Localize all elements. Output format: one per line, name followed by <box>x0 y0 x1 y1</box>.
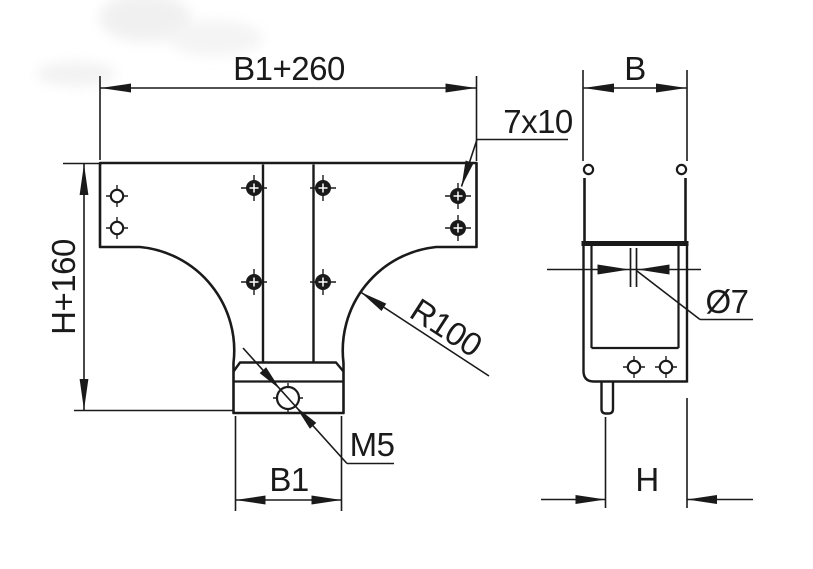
dim-label-fillet-radius: R100 <box>404 291 489 364</box>
dim-label-thread: M5 <box>350 426 395 463</box>
dim-label-hole-diameter: Ø7 <box>705 283 748 320</box>
front-outline <box>100 163 477 413</box>
arrowhead <box>656 84 687 93</box>
drawing-canvas: B1+260 7x10 H+160 R100 <box>0 0 813 569</box>
arrowhead <box>361 292 387 311</box>
dimensions: B1+260 7x10 H+160 R100 <box>45 50 753 511</box>
mounting-tab <box>602 382 614 414</box>
hole-filled <box>445 183 471 209</box>
technical-drawing: B1+260 7x10 H+160 R100 <box>0 0 813 569</box>
hole-filled <box>445 215 471 241</box>
hole-open <box>106 217 128 239</box>
side-view <box>582 165 689 414</box>
dim-overall-height: H+160 <box>45 164 233 411</box>
arrowhead <box>687 495 717 504</box>
arrowhead <box>236 496 266 505</box>
dim-slot: 7x10 <box>462 103 573 187</box>
dim-label-tray-height: H <box>635 461 658 498</box>
arrowhead <box>598 265 630 275</box>
arrowhead <box>638 265 670 275</box>
arrowhead <box>80 164 89 195</box>
dim-label-stem-width: B1 <box>269 461 308 498</box>
watermark <box>36 0 263 86</box>
arrowhead <box>296 407 317 429</box>
front-view <box>100 163 477 413</box>
hole-open <box>623 356 645 378</box>
dim-tray-height: H <box>541 398 753 508</box>
arrowhead <box>80 379 89 410</box>
dim-hole-diameter: Ø7 <box>547 265 753 321</box>
block-chamfer <box>234 363 344 372</box>
hook-right <box>677 165 686 174</box>
dim-label-tray-width: B <box>624 50 646 87</box>
dim-overall-width: B1+260 <box>100 50 477 161</box>
dim-tray-width: B <box>583 50 687 161</box>
dim-label-overall-height: H+160 <box>45 239 82 335</box>
dim-thread: M5 <box>243 348 394 464</box>
arrowhead <box>260 367 281 389</box>
arrowhead <box>576 495 606 504</box>
hole-open <box>655 356 677 378</box>
arrowhead <box>462 161 474 187</box>
arrowhead <box>584 84 615 93</box>
dim-label-slot: 7x10 <box>503 103 573 140</box>
hole-open <box>106 185 128 207</box>
hook-left <box>584 165 593 174</box>
dim-stem-width: B1 <box>236 416 342 511</box>
dim-label-overall-width: B1+260 <box>233 50 345 87</box>
arrowhead <box>312 496 342 505</box>
arrowhead <box>101 84 132 93</box>
dim-fillet-radius: R100 <box>361 291 490 376</box>
arrowhead <box>446 84 477 93</box>
